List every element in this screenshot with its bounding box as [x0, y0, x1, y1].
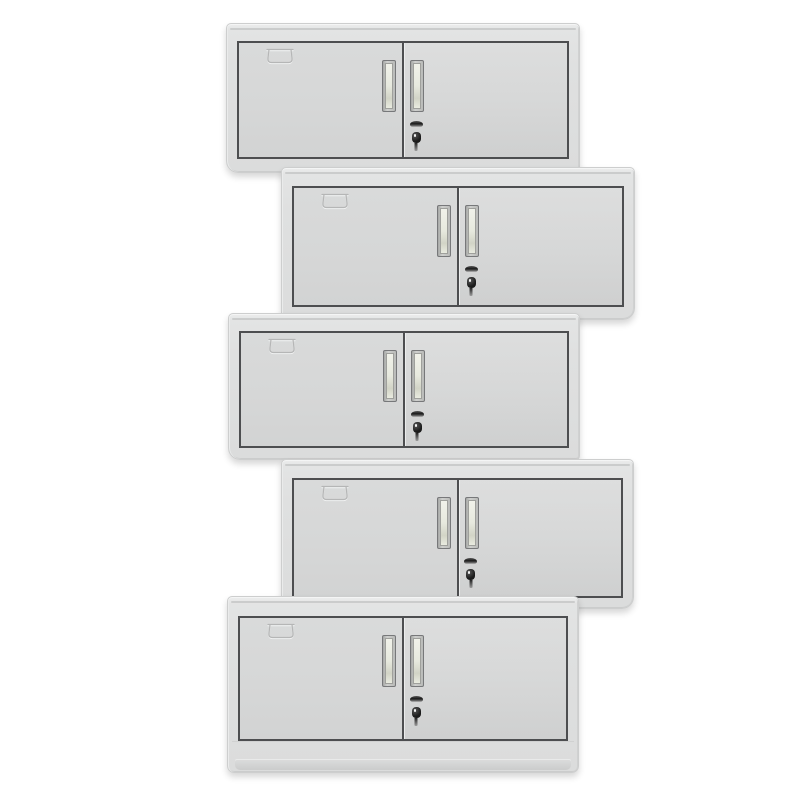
label-card-slot-icon — [266, 621, 296, 641]
handle-recess — [468, 500, 476, 546]
cabinet-top-edge — [232, 318, 576, 320]
handle-recess — [385, 638, 393, 684]
right-door — [458, 480, 622, 596]
right-door — [403, 43, 567, 157]
left-door — [294, 480, 458, 596]
right-door-handle-icon — [465, 205, 479, 257]
right-door — [458, 188, 622, 305]
handle-recess — [413, 638, 421, 684]
cabinet-top-edge — [230, 28, 576, 30]
cabinet-doors — [292, 478, 623, 598]
lock-with-key-icon — [410, 411, 424, 433]
left-door-handle-icon — [382, 635, 396, 687]
cabinet-5 — [227, 596, 579, 773]
door-divider — [403, 333, 405, 446]
cabinet-doors — [238, 616, 568, 741]
cabinet-doors — [292, 186, 624, 307]
right-door-handle-icon — [410, 635, 424, 687]
cabinet-top-edge — [285, 172, 631, 174]
handle-recess — [386, 353, 394, 399]
lock-with-key-icon — [409, 121, 423, 143]
left-door-handle-icon — [382, 60, 396, 112]
handle-recess — [440, 208, 448, 254]
left-door — [240, 618, 403, 739]
cabinet-4 — [281, 459, 634, 609]
lock-cylinder-icon — [410, 121, 423, 128]
left-door-handle-icon — [383, 350, 397, 402]
lock-cylinder-icon — [410, 696, 423, 703]
key-icon — [466, 569, 475, 580]
right-door-handle-icon — [410, 60, 424, 112]
label-card-slot-icon — [320, 191, 350, 211]
right-door — [404, 333, 567, 446]
right-door — [403, 618, 566, 739]
cabinet-top-edge — [231, 601, 575, 603]
cabinet-3 — [228, 313, 580, 460]
door-divider — [402, 618, 404, 739]
lock-with-key-icon — [464, 266, 478, 288]
lock-cylinder-icon — [465, 266, 478, 273]
plinth-base — [228, 741, 578, 772]
key-icon — [412, 132, 421, 143]
right-door-handle-icon — [411, 350, 425, 402]
lock-cylinder-icon — [464, 558, 477, 565]
left-door — [241, 333, 404, 446]
cabinet-doors — [239, 331, 569, 448]
key-icon — [467, 277, 476, 288]
door-divider — [402, 43, 404, 157]
cabinet-doors — [237, 41, 569, 159]
left-door-handle-icon — [437, 497, 451, 549]
handle-recess — [385, 63, 393, 109]
handle-recess — [468, 208, 476, 254]
label-card-slot-icon — [267, 336, 297, 356]
left-door-handle-icon — [437, 205, 451, 257]
key-icon — [412, 707, 421, 718]
lock-with-key-icon — [409, 696, 423, 718]
door-divider — [457, 480, 459, 596]
handle-recess — [440, 500, 448, 546]
handle-recess — [414, 353, 422, 399]
left-door — [239, 43, 403, 157]
right-door-handle-icon — [465, 497, 479, 549]
cabinet-top-edge — [285, 464, 630, 466]
label-card-slot-icon — [320, 483, 350, 503]
handle-recess — [413, 63, 421, 109]
key-icon — [413, 422, 422, 433]
cabinet-1 — [226, 23, 580, 173]
lock-cylinder-icon — [411, 411, 424, 418]
lock-with-key-icon — [464, 558, 478, 580]
cabinet-2 — [281, 167, 635, 320]
left-door — [294, 188, 458, 305]
product-photo-stage — [0, 0, 800, 800]
door-divider — [457, 188, 459, 305]
label-card-slot-icon — [265, 46, 295, 66]
